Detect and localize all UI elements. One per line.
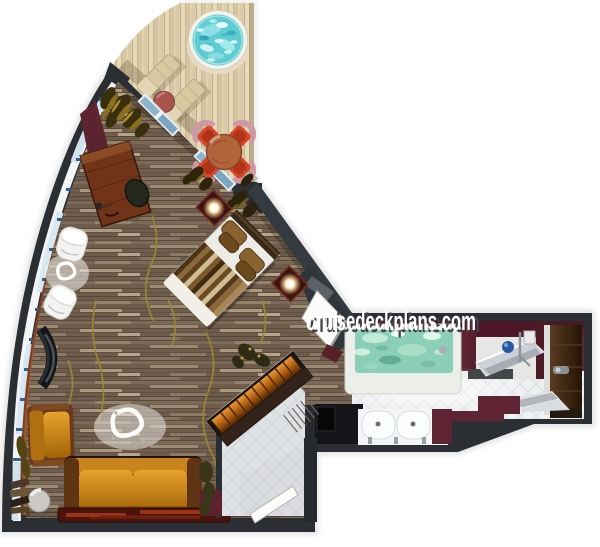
svg-text:cruisedeckplans.com: cruisedeckplans.com [306, 306, 476, 336]
